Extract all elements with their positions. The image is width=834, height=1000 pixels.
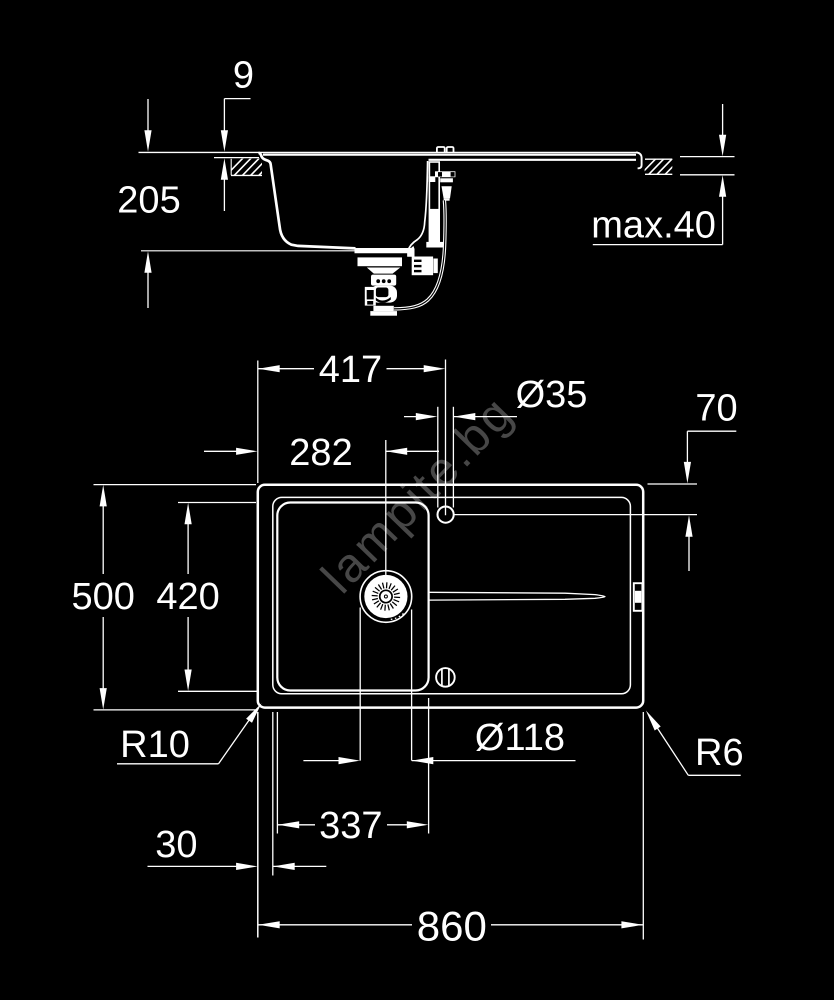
svg-text:Ø35: Ø35 bbox=[516, 374, 588, 416]
svg-text:420: 420 bbox=[156, 576, 219, 618]
svg-text:max.40: max.40 bbox=[591, 205, 716, 247]
svg-text:R10: R10 bbox=[120, 724, 190, 766]
svg-text:70: 70 bbox=[695, 388, 737, 430]
svg-text:Ø118: Ø118 bbox=[475, 717, 565, 759]
svg-text:30: 30 bbox=[155, 824, 197, 866]
svg-text:R6: R6 bbox=[695, 732, 744, 774]
svg-text:860: 860 bbox=[417, 903, 487, 950]
svg-text:282: 282 bbox=[289, 432, 352, 474]
svg-text:500: 500 bbox=[71, 576, 134, 618]
svg-text:417: 417 bbox=[319, 349, 382, 391]
svg-text:337: 337 bbox=[319, 805, 382, 847]
svg-text:205: 205 bbox=[117, 180, 180, 222]
svg-text:9: 9 bbox=[233, 55, 254, 97]
